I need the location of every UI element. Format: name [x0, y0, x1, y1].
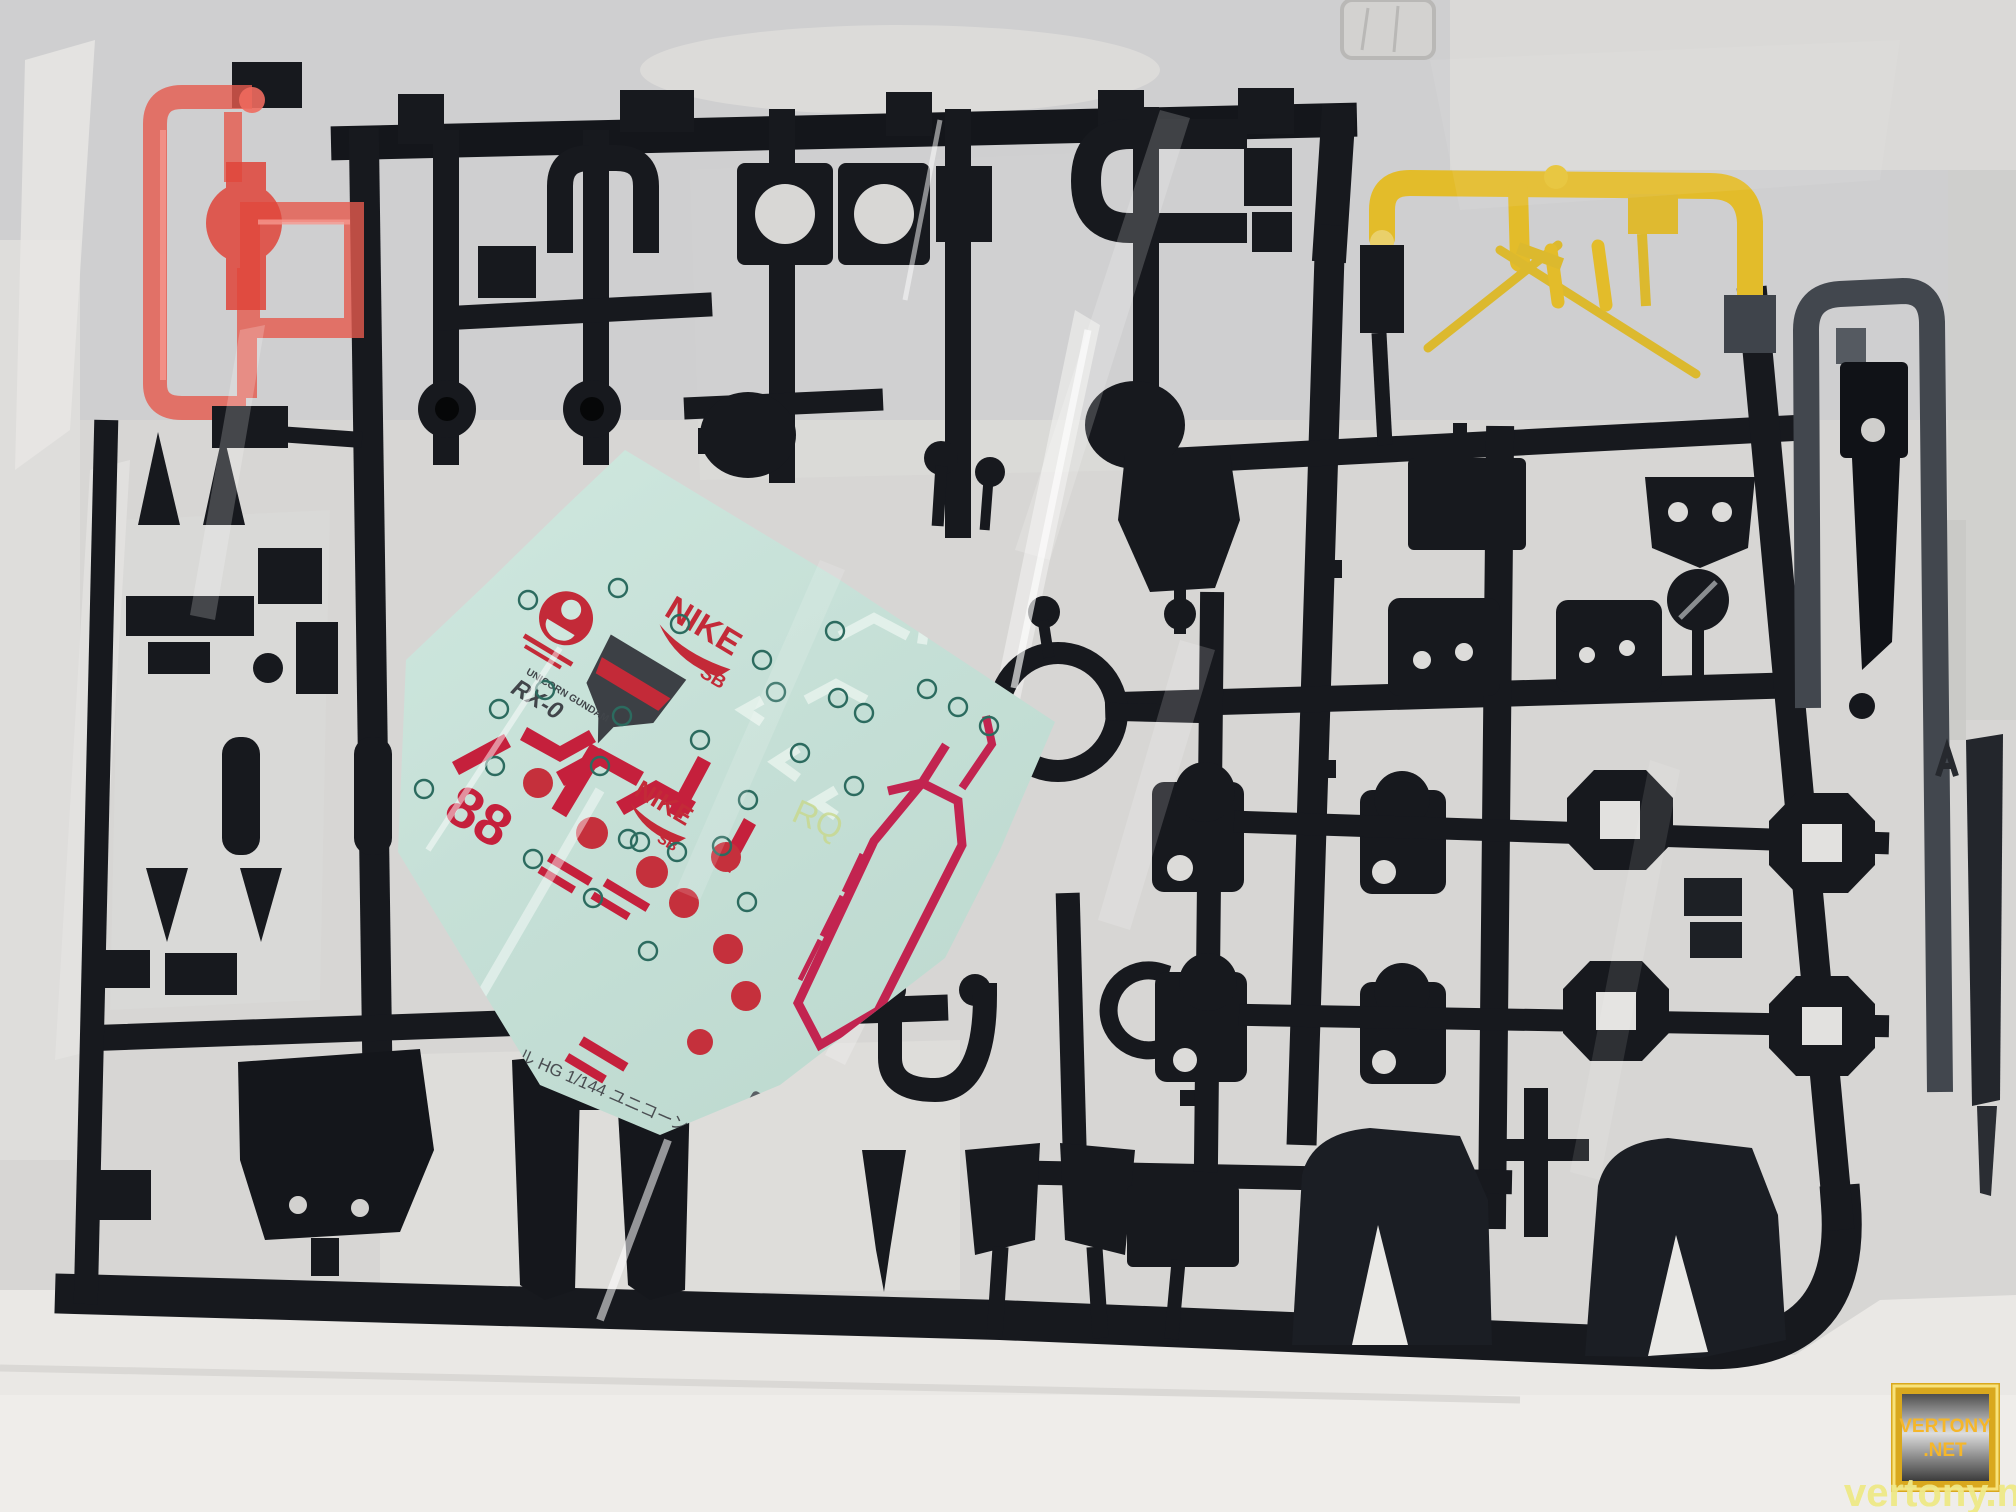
svg-text:vertony.net: vertony.net: [1844, 1471, 2016, 1512]
svg-text:VERTONY: VERTONY: [1899, 1416, 1991, 1437]
svg-text:.NET: .NET: [1923, 1440, 1967, 1461]
